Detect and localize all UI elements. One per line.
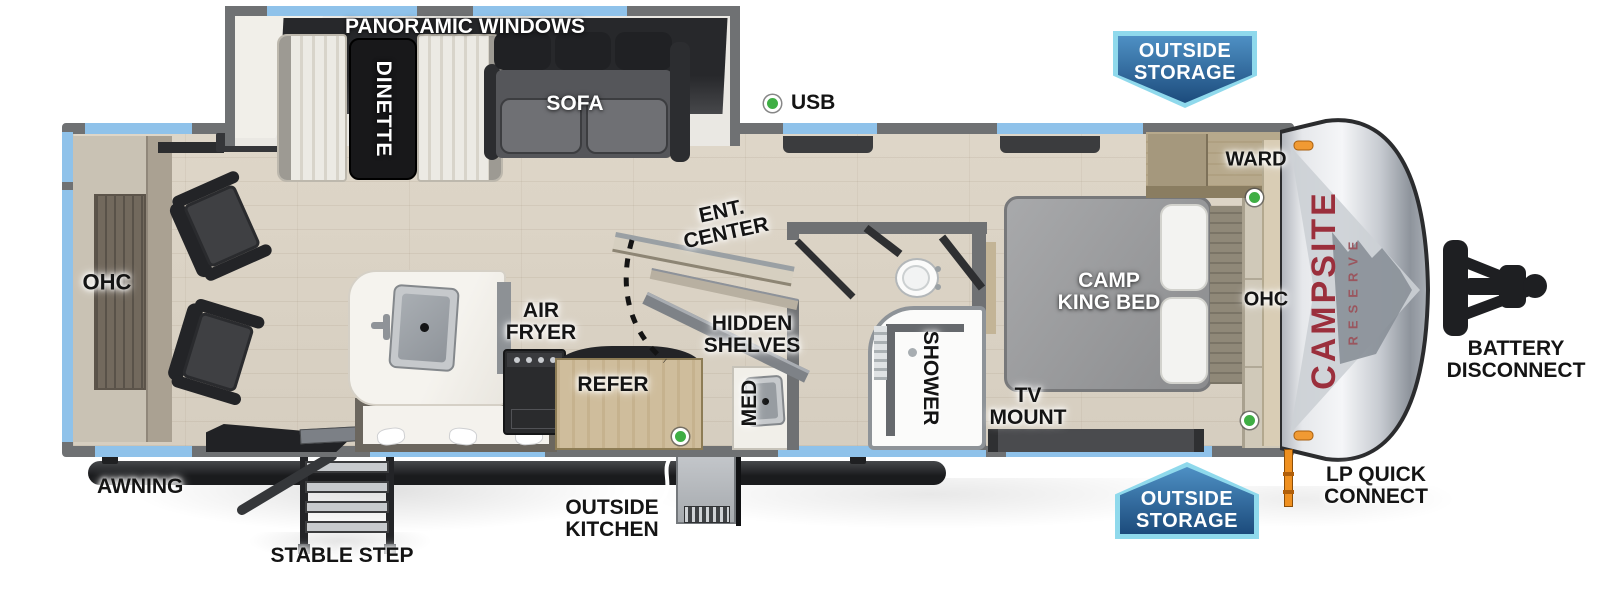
- label-line: FRYER: [506, 322, 576, 344]
- bed-headboard: [1210, 206, 1242, 384]
- hitch-jack: [1443, 240, 1468, 336]
- window-strip: [85, 123, 192, 134]
- burner-strip: [507, 353, 562, 367]
- bench-back: [279, 36, 291, 180]
- window-strip: [95, 446, 192, 457]
- kitchen-sink: [388, 284, 460, 372]
- label-line: KING BED: [1058, 292, 1161, 314]
- burner: [526, 357, 532, 363]
- bathroom-wall: [787, 222, 987, 234]
- burner: [514, 357, 520, 363]
- clearance-light: [1294, 431, 1313, 440]
- shower-louvers: [874, 326, 887, 380]
- label-dinette: DINETTE: [372, 61, 394, 158]
- label-line: SHELVES: [704, 335, 800, 357]
- label-line: DISCONNECT: [1447, 360, 1586, 382]
- badge-line: STORAGE: [1115, 510, 1259, 532]
- toilet-hinge: [935, 266, 941, 272]
- shower-glass: [886, 324, 895, 436]
- entry-steps: [226, 446, 416, 558]
- step-tread: [306, 522, 388, 532]
- badge-line: OUTSIDE: [1113, 40, 1257, 62]
- label-sofa: SOFA: [546, 93, 603, 115]
- label-line: HIDDEN: [704, 313, 800, 335]
- label-shower: SHOWER: [919, 331, 941, 426]
- label-air-fryer: AIR FRYER: [506, 300, 576, 345]
- clearance-light: [1294, 141, 1313, 150]
- usb-indicator-dot: [1246, 189, 1263, 206]
- step-tread: [306, 502, 388, 512]
- label-line: BATTERY: [1447, 338, 1586, 360]
- window-strip: [997, 123, 1143, 134]
- sofa-cushion: [615, 32, 672, 70]
- step-tread: [306, 482, 388, 492]
- window-valance: [1000, 136, 1100, 153]
- label-line: CONNECT: [1324, 486, 1428, 508]
- front-cap: CAMPSITE RESERVE: [1280, 114, 1550, 466]
- label-panoramic-windows: PANORAMIC WINDOWS: [345, 16, 585, 38]
- label-line: TV: [990, 385, 1067, 407]
- bed-pillows: [1160, 204, 1208, 384]
- toilet: [895, 256, 949, 300]
- label-camp-king-bed: CAMP KING BED: [1058, 270, 1161, 315]
- window-strip: [62, 190, 73, 442]
- badge-line: STORAGE: [1113, 62, 1257, 84]
- rear-cabinet-column: [146, 136, 172, 442]
- brand-reserve: RESERVE: [1346, 235, 1361, 346]
- label-outside-kitchen: OUTSIDE KITCHEN: [565, 497, 658, 542]
- label-med: MED: [739, 380, 761, 427]
- pillow: [1160, 204, 1208, 291]
- label-stable-step: STABLE STEP: [270, 545, 413, 567]
- outside-storage-badge-bottom: OUTSIDE STORAGE: [1115, 462, 1259, 539]
- outside-storage-badge-top: OUTSIDE STORAGE: [1113, 31, 1257, 108]
- label-line: OUTSIDE: [565, 497, 658, 519]
- brand-campsite: CAMPSITE: [1305, 190, 1343, 390]
- dresser-end: [1194, 429, 1204, 452]
- hitch-tongue: [1443, 240, 1547, 336]
- window-strip: [62, 132, 73, 182]
- dinette-bench: [277, 34, 347, 182]
- burner: [538, 357, 544, 363]
- wardrobe-door: [1148, 134, 1208, 194]
- floorplan-canvas: OUTSIDE STORAGE OUTSIDE STORAGE CAMPSITE: [0, 0, 1600, 602]
- label-hidden-shelves: HIDDEN SHELVES: [704, 313, 800, 358]
- label-line: CAMP: [1058, 270, 1161, 292]
- label-lp-quick-connect: LP QUICK CONNECT: [1324, 464, 1428, 509]
- badge-label: OUTSIDE STORAGE: [1115, 488, 1259, 533]
- usb-indicator-dot: [764, 95, 781, 112]
- label-awning: AWNING: [97, 476, 183, 498]
- window-valance: [783, 136, 873, 153]
- usb-indicator-dot: [1241, 412, 1258, 429]
- label-line: MOUNT: [990, 407, 1067, 429]
- awning-roll: [88, 461, 946, 485]
- shower-drain: [908, 348, 917, 357]
- label-ward: WARD: [1225, 149, 1286, 170]
- dresser-end: [988, 429, 998, 452]
- bench-item: [448, 427, 478, 447]
- pipe-ring: [1283, 490, 1294, 494]
- hitch-coupler: [1499, 265, 1526, 308]
- badge-label: OUTSIDE STORAGE: [1113, 40, 1257, 85]
- label-line: AIR: [506, 300, 576, 322]
- label-battery-disconnect: BATTERY DISCONNECT: [1447, 338, 1586, 383]
- toilet-hinge: [935, 284, 941, 290]
- toilet-seat: [902, 265, 930, 291]
- sofa-arm: [670, 42, 690, 162]
- badge-line: OUTSIDE: [1115, 488, 1259, 510]
- tv-dresser: [988, 429, 1204, 452]
- window-strip: [783, 123, 877, 134]
- usb-indicator-dot: [672, 428, 689, 445]
- hitch-ball: [1523, 274, 1547, 298]
- label-line: KITCHEN: [565, 519, 658, 541]
- label-ohc-rear: OHC: [83, 270, 132, 293]
- label-ohc-bedroom: OHC: [1244, 289, 1288, 310]
- bathroom-wall: [787, 222, 799, 240]
- bedroom-trim: [986, 242, 996, 334]
- griddle-support: [736, 456, 741, 526]
- lp-quick-connect-pipe: [1284, 449, 1293, 507]
- pipe-ring: [1283, 472, 1294, 476]
- overhead-shelf: [158, 142, 224, 153]
- oven-drawer: [511, 409, 560, 429]
- griddle-vent: [684, 506, 730, 523]
- label-tv-mount: TV MOUNT: [990, 385, 1067, 430]
- pillow: [1160, 297, 1208, 384]
- faucet: [371, 312, 391, 342]
- label-line: LP QUICK: [1324, 464, 1428, 486]
- bench-item: [376, 426, 406, 447]
- faucet-arm: [371, 322, 389, 329]
- label-refer: REFER: [577, 374, 648, 396]
- label-usb: USB: [791, 92, 835, 114]
